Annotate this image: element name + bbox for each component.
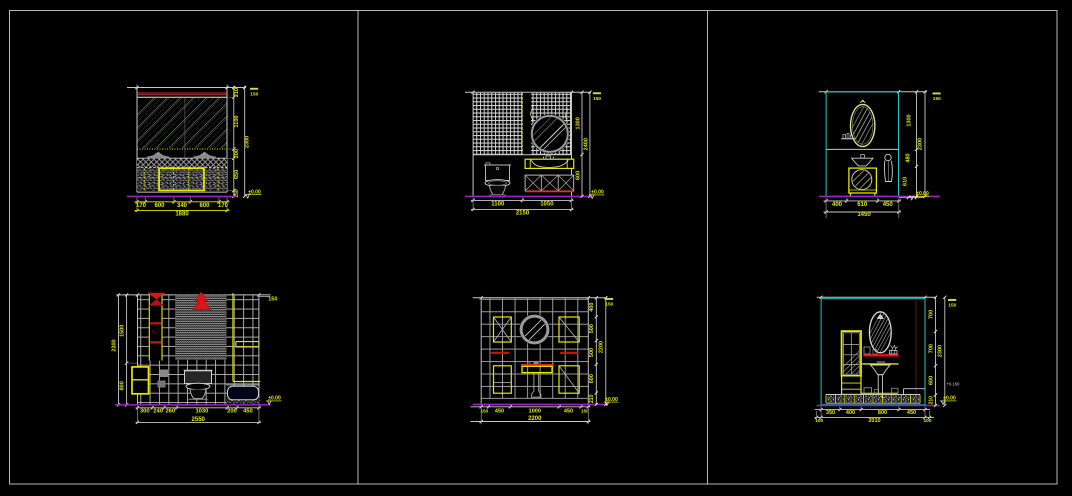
svg-text:600: 600 [154, 203, 165, 209]
svg-text:150: 150 [250, 91, 258, 97]
svg-text:2010: 2010 [868, 418, 880, 424]
svg-text:1300: 1300 [907, 114, 913, 126]
svg-text:2300: 2300 [244, 136, 250, 148]
svg-text:100: 100 [815, 418, 823, 424]
svg-text:2300: 2300 [112, 339, 118, 351]
svg-text:600: 600 [576, 171, 582, 180]
svg-text:1450: 1450 [857, 212, 871, 218]
svg-text:260: 260 [165, 409, 175, 415]
svg-text:210: 210 [928, 396, 934, 405]
svg-text:600: 600 [928, 376, 934, 385]
svg-text:150: 150 [581, 409, 589, 414]
svg-text:2550: 2550 [192, 417, 206, 423]
svg-text:150: 150 [593, 96, 601, 102]
svg-text:400: 400 [832, 202, 843, 208]
svg-text:2150: 2150 [516, 211, 530, 217]
svg-text:450: 450 [243, 409, 253, 415]
svg-text:150: 150 [948, 303, 956, 309]
svg-text:700: 700 [928, 310, 934, 319]
svg-text:240: 240 [153, 409, 163, 415]
svg-text:500: 500 [589, 348, 595, 357]
svg-text:1030: 1030 [195, 409, 208, 415]
svg-text:1050: 1050 [540, 202, 554, 208]
svg-text:600: 600 [589, 374, 595, 383]
svg-text:700: 700 [928, 344, 934, 353]
svg-text:2300: 2300 [938, 345, 944, 357]
svg-text:150: 150 [481, 409, 489, 414]
svg-text:150: 150 [933, 96, 941, 102]
svg-text:1880: 1880 [175, 212, 189, 218]
svg-text:150: 150 [268, 297, 277, 303]
svg-text:210: 210 [234, 88, 240, 97]
svg-text:400: 400 [589, 303, 595, 312]
svg-text:450: 450 [907, 410, 916, 416]
svg-text:600: 600 [199, 203, 210, 209]
svg-text:2300: 2300 [918, 138, 924, 150]
svg-text:450: 450 [495, 409, 504, 415]
svg-text:210: 210 [589, 394, 595, 403]
svg-text:800: 800 [119, 381, 125, 390]
svg-text:150: 150 [605, 302, 613, 308]
svg-text:200: 200 [234, 149, 240, 158]
svg-text:450: 450 [564, 409, 573, 415]
svg-text:1100: 1100 [234, 116, 240, 128]
svg-text:610: 610 [857, 202, 868, 208]
svg-text:1500: 1500 [119, 325, 125, 337]
svg-text:100: 100 [923, 418, 931, 424]
svg-text:1100: 1100 [491, 202, 505, 208]
svg-text:300: 300 [140, 409, 150, 415]
svg-text:2400: 2400 [583, 138, 589, 150]
svg-text:200: 200 [227, 409, 237, 415]
svg-text:2200: 2200 [528, 416, 542, 422]
svg-text:800: 800 [878, 410, 887, 416]
svg-text:350: 350 [826, 410, 835, 416]
svg-text:480: 480 [906, 153, 912, 162]
svg-text:1300: 1300 [576, 117, 582, 129]
svg-text:1000: 1000 [529, 409, 541, 415]
svg-text:340: 340 [177, 203, 188, 209]
svg-text:650: 650 [234, 170, 240, 179]
svg-text:+0.150: +0.150 [947, 382, 961, 387]
svg-text:400: 400 [846, 410, 855, 416]
svg-text:610: 610 [903, 177, 909, 186]
svg-text:450: 450 [883, 202, 894, 208]
svg-text:2200: 2200 [599, 341, 605, 353]
svg-text:500: 500 [589, 324, 595, 333]
svg-text:170: 170 [136, 203, 147, 209]
